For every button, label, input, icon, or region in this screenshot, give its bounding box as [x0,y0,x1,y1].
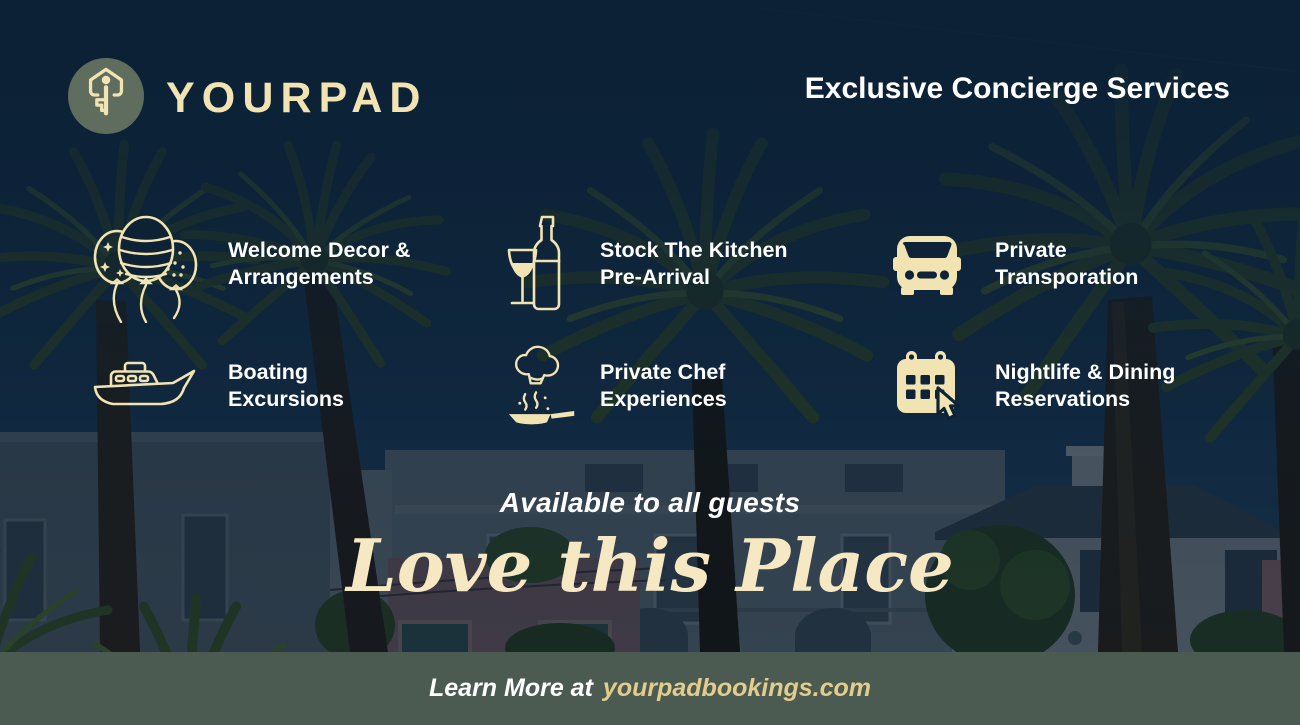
service-label: PrivateTransporation [995,237,1138,292]
calendar-cursor-icon [883,350,971,422]
balloons-icon [88,205,204,323]
service-private-chef: Private ChefExperiences [498,326,883,446]
service-label: Nightlife & DiningReservations [995,359,1175,414]
bottom-bar: Learn More at yourpadbookings.com [0,652,1300,725]
service-private-transportation: PrivateTransporation [883,204,1248,324]
services-grid: Welcome Decor &Arrangements Stock The [88,204,1248,446]
brand-logo: YOURPAD [68,58,428,134]
wine-icon [498,214,576,314]
service-label: Welcome Decor &Arrangements [228,237,410,292]
service-nightlife-dining: Nightlife & DiningReservations [883,326,1248,446]
service-label: Private ChefExperiences [600,359,727,414]
learn-more-text: Learn More at [429,674,593,703]
promo-poster: YOURPAD Exclusive Concierge Services [0,0,1300,725]
service-boating: BoatingExcursions [88,326,498,446]
service-label: Stock The KitchenPre-Arrival [600,237,788,292]
service-stock-kitchen: Stock The KitchenPre-Arrival [498,204,883,324]
service-label: BoatingExcursions [228,359,344,414]
logo-circle [68,58,144,134]
brand-name: YOURPAD [166,73,428,120]
script-tagline: Love this Place [0,526,1300,605]
key-icon [82,66,130,127]
car-icon [883,232,971,296]
availability-note: Available to all guests [0,487,1300,519]
boat-icon [88,357,204,415]
website-url: yourpadbookings.com [603,674,871,703]
service-welcome-decor: Welcome Decor &Arrangements [88,204,498,324]
chef-icon [498,339,576,433]
page-title: Exclusive Concierge Services [805,72,1230,106]
